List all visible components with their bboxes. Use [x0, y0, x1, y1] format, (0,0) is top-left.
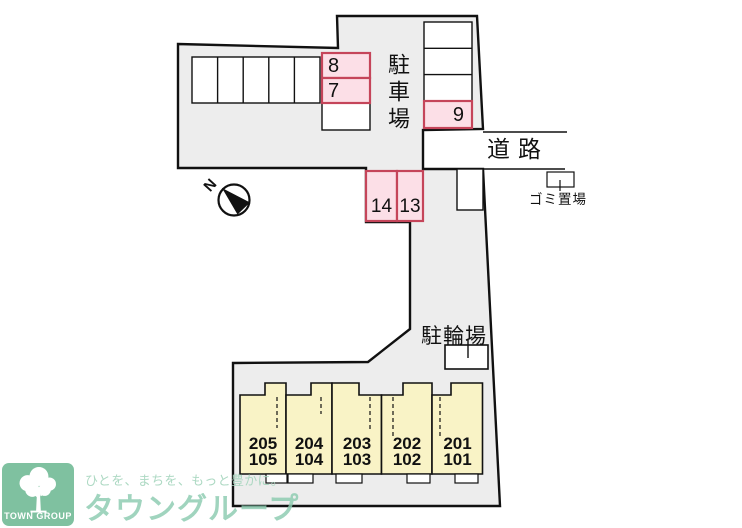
site-plan: 駐車場 道路 ゴミ置場 駐輪場 8 7 9 14 13 N 205 105 20…: [0, 0, 742, 528]
space-number-9: 9: [424, 101, 464, 129]
parking-cell-blank: [322, 103, 370, 130]
unit-label-203-103: 203 103: [333, 436, 381, 467]
space-number-14: 14: [366, 171, 397, 218]
garbage-area-label: ゴミ置場: [529, 188, 587, 208]
unit-lower: 105: [249, 452, 277, 468]
unit-label-205-105: 205 105: [239, 436, 287, 467]
space-number-8: 8: [328, 53, 339, 79]
unit-label-202-102: 202 102: [383, 436, 431, 467]
unit-label-204-104: 204 104: [285, 436, 333, 467]
bicycle-area-label: 駐輪場: [421, 320, 487, 350]
unit-lower: 103: [343, 452, 371, 468]
parking-lot-label: 駐車場: [385, 53, 409, 134]
compass-icon: [219, 185, 251, 216]
space-number-7: 7: [328, 78, 339, 104]
unit-lower: 104: [295, 452, 323, 468]
town-group-logo: TOWN GROUP: [2, 463, 74, 526]
parking-row-west: [192, 57, 320, 103]
unit-label-201-101: 201 101: [433, 436, 482, 467]
brand-name: タウングループ: [84, 484, 299, 528]
road-label: 道路: [487, 136, 549, 162]
parking-column-east: [424, 22, 472, 101]
unit-lower: 102: [393, 452, 421, 468]
unit-lower: 101: [443, 452, 471, 468]
utility-box: [457, 169, 483, 210]
space-number-13: 13: [397, 171, 423, 218]
logo-text: TOWN GROUP: [2, 511, 74, 521]
